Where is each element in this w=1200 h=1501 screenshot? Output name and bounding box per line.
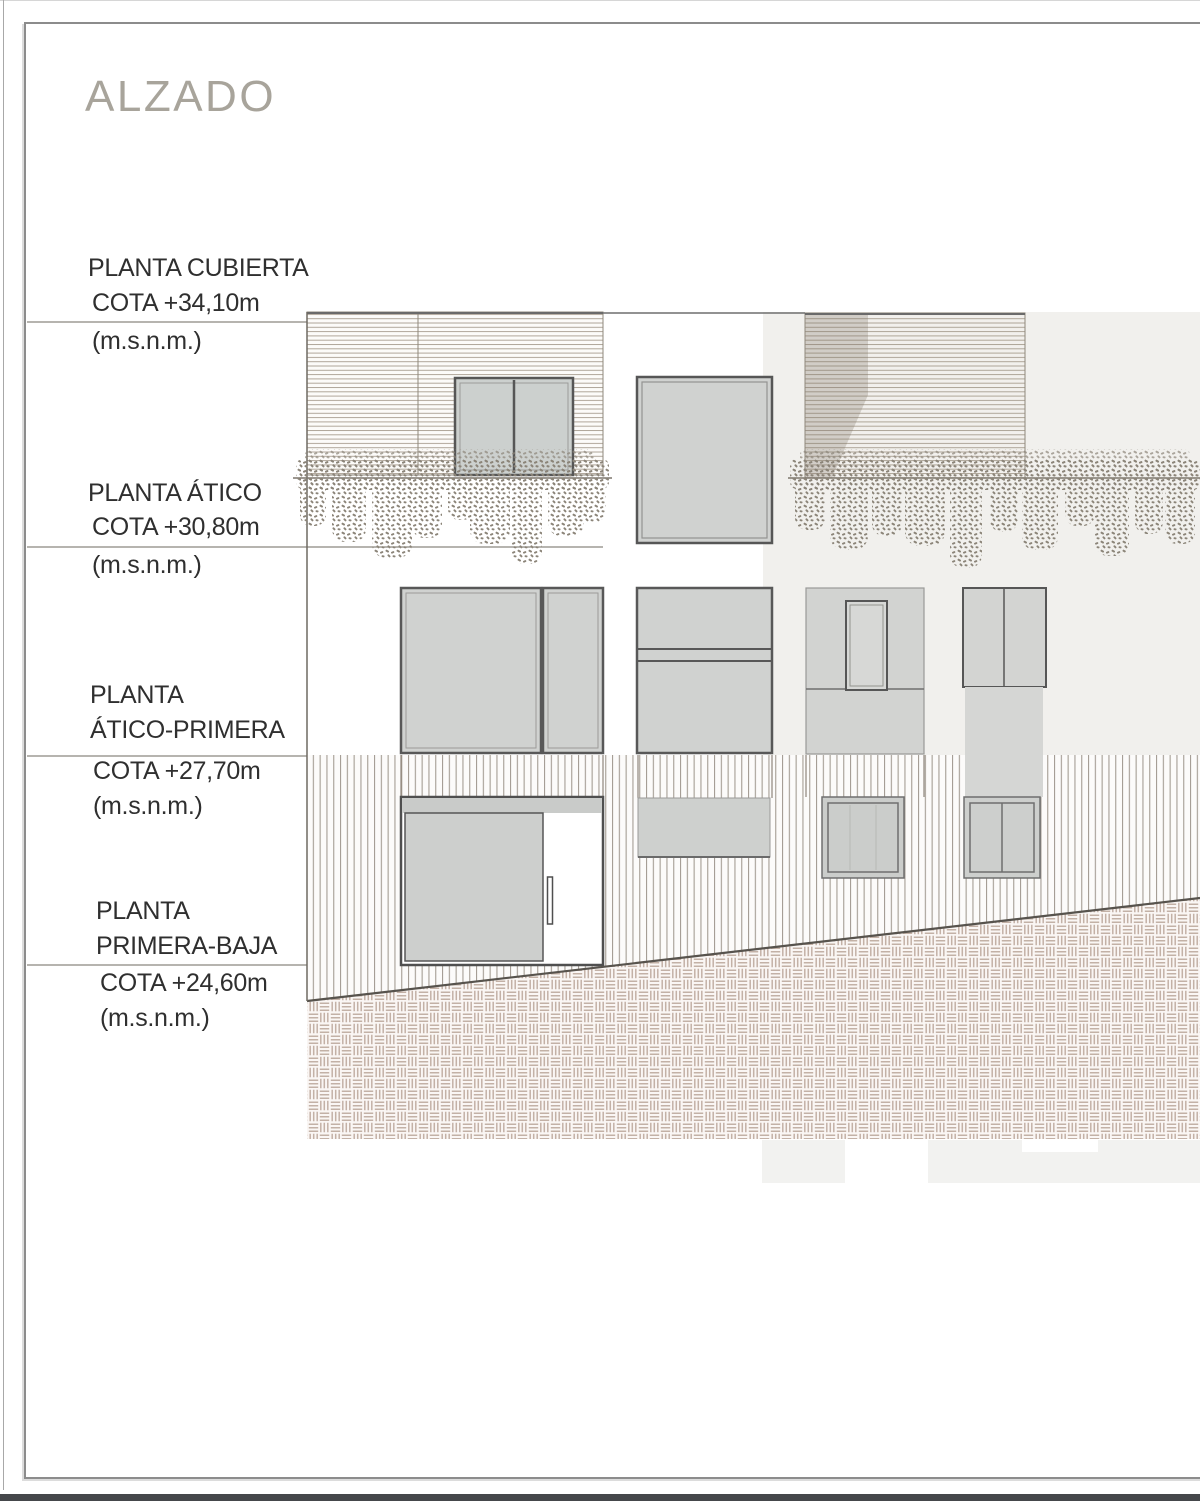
elevation-drawing bbox=[0, 0, 1200, 1501]
window-low-left bbox=[822, 797, 904, 878]
window-low-right bbox=[964, 797, 1040, 878]
window-spandrel-block bbox=[965, 687, 1043, 797]
hanging-tufts-left bbox=[300, 480, 606, 564]
window-large-left bbox=[401, 588, 541, 753]
door-handle bbox=[548, 877, 553, 924]
elevation-sheet: ALZADO PLANTA CUBIERTA COTA +34,10m (m.s… bbox=[0, 0, 1200, 1501]
window-narrow-left bbox=[543, 588, 603, 753]
window-right-pair bbox=[963, 588, 1046, 687]
sheet-bottom-bar bbox=[0, 1494, 1200, 1501]
entry-sliding-door bbox=[401, 797, 603, 965]
window-center-banded bbox=[637, 588, 772, 753]
door-transom bbox=[402, 798, 602, 813]
window-low-center bbox=[638, 798, 770, 857]
window-panel-with-inset bbox=[806, 588, 924, 754]
inset-window bbox=[846, 601, 887, 690]
stair-core-window bbox=[637, 377, 772, 543]
backdrop-base-fragments bbox=[762, 1140, 1200, 1183]
door-leaf bbox=[405, 813, 543, 961]
